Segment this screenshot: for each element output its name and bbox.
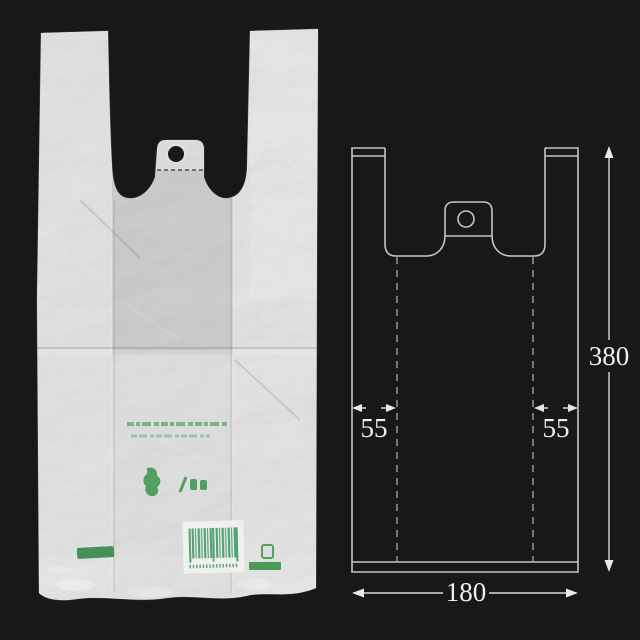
gusset-left-label: 55	[361, 413, 388, 443]
dimension-width: 180	[352, 577, 578, 607]
dimension-gusset-left: 55	[352, 404, 396, 443]
gusset-right-label: 55	[543, 413, 570, 443]
handles-and-tab-outline	[385, 148, 545, 256]
height-label: 380	[589, 341, 630, 371]
hanging-hole-outline	[458, 211, 474, 227]
arrow-right-icon	[566, 589, 578, 598]
arrow-left-icon	[352, 589, 364, 598]
arrow-left-icon	[352, 404, 362, 412]
dimension-height: 380	[589, 146, 630, 572]
arrow-right-icon	[568, 404, 578, 412]
gusset-dashed-lines	[397, 257, 533, 562]
diagram-outline	[352, 148, 578, 572]
width-label: 180	[446, 577, 487, 607]
arrow-down-icon	[605, 560, 614, 572]
product-image-stage: 380 180 55 55	[0, 0, 640, 640]
arrow-right-icon	[386, 404, 396, 412]
arrow-left-icon	[534, 404, 544, 412]
bag-dimension-diagram: 380 180 55 55	[0, 0, 640, 640]
dimension-gusset-right: 55	[534, 404, 578, 443]
arrow-up-icon	[605, 146, 614, 158]
